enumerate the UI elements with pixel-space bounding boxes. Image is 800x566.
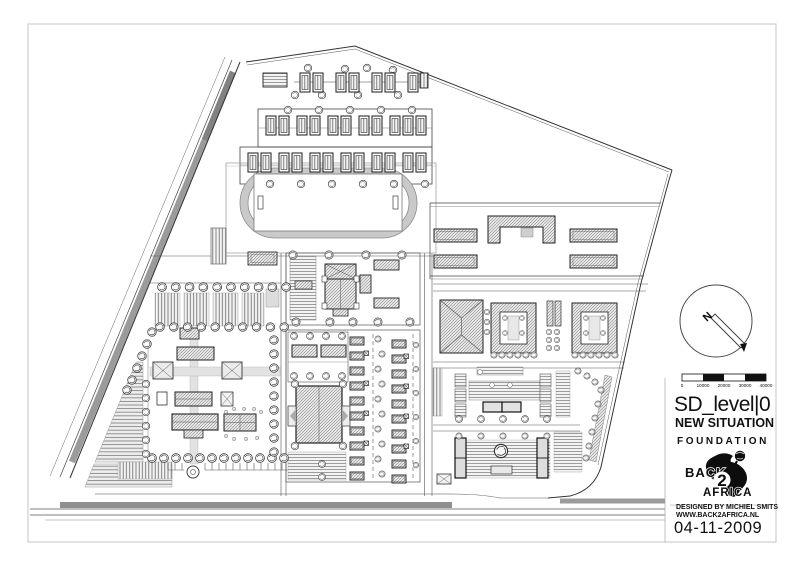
chapel-building <box>224 414 256 431</box>
website-credit: WWW.BACK2AFRICA.NL <box>676 512 759 519</box>
title-block: SD_level|0 NEW SITUATION FOUNDATION BACK… <box>668 370 776 546</box>
market-canopy <box>469 381 540 400</box>
pavilion-left <box>153 362 173 379</box>
goal-right <box>393 196 398 209</box>
church-building <box>322 264 359 316</box>
drawing-sheet: N 0 10000 20000 30000 40000 SD_level|0 N… <box>0 0 800 566</box>
drawing-title: SD_level|0 <box>674 393 770 417</box>
fountain <box>187 466 199 478</box>
drawing-date: 04-11-2009 <box>674 519 762 538</box>
xbox-small <box>221 392 233 406</box>
back2africa-logo: BACK 2 AFRICA <box>684 450 764 500</box>
xbox-market <box>437 474 451 484</box>
courtyard-building-a <box>491 303 536 353</box>
courtyard-block <box>440 300 617 353</box>
logo-tree-icon <box>734 451 745 467</box>
pavilion-right <box>222 362 242 379</box>
courtyard-building-b <box>572 303 617 353</box>
goal-left <box>258 196 263 209</box>
designer-credit: DESIGNED BY MICHIEL SMITS <box>676 504 778 511</box>
crop-rows <box>155 289 279 326</box>
client-name: FOUNDATION <box>677 436 769 447</box>
soccer-field <box>254 174 402 231</box>
logo-word-africa: AFRICA <box>703 487 752 499</box>
drawing-subtitle: NEW SITUATION <box>675 416 774 430</box>
hipped-roof-building <box>440 300 483 353</box>
gate-building <box>248 252 277 265</box>
assembly-hall <box>288 386 350 443</box>
